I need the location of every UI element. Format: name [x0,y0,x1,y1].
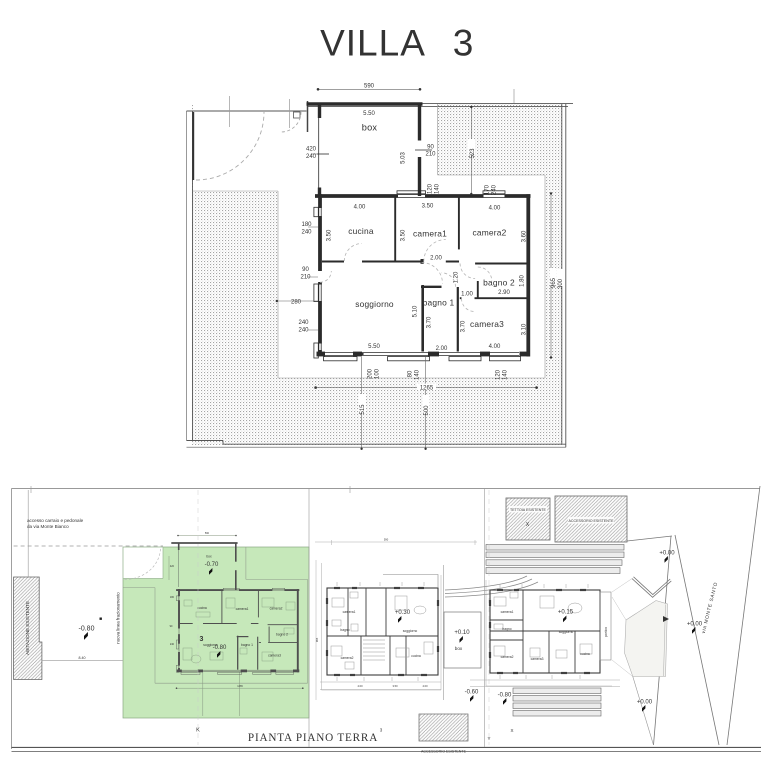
svg-text:camera2: camera2 [501,655,514,659]
svg-text:-0.80: -0.80 [79,626,95,633]
svg-text:280: 280 [291,300,302,306]
svg-text:500: 500 [424,405,430,416]
svg-text:2.00: 2.00 [436,346,448,352]
svg-text:965: 965 [315,637,319,642]
svg-text:camera1: camera1 [501,610,514,614]
svg-text:camera2: camera2 [270,607,283,611]
svg-text:camera2: camera2 [473,228,507,238]
svg-text:ACCESSORIO ESISTENTE: ACCESSORIO ESISTENTE [421,750,467,754]
svg-text:box: box [362,123,378,133]
svg-text:TETTOIA ESISTENTE: TETTOIA ESISTENTE [510,508,546,512]
svg-text:965: 965 [551,277,557,288]
svg-text:+0.10: +0.10 [454,630,470,636]
svg-text:5.50: 5.50 [368,344,380,350]
svg-text:3.50: 3.50 [392,684,398,688]
svg-text:3.50: 3.50 [327,229,333,241]
svg-text:590: 590 [205,532,210,535]
svg-text:3.50: 3.50 [422,204,434,210]
svg-text:210: 210 [300,275,311,281]
svg-text:2.00: 2.00 [430,256,442,262]
svg-text:-0.80: -0.80 [213,645,227,651]
svg-text:3.70: 3.70 [461,320,467,332]
svg-text:590: 590 [364,84,375,90]
svg-text:box: box [455,646,463,651]
svg-text:cucina: cucina [411,654,421,658]
svg-text:590: 590 [384,538,389,542]
svg-text:da via Monte Bianco: da via Monte Bianco [27,524,69,529]
svg-text:4.00: 4.00 [357,684,363,688]
svg-text:3.60: 3.60 [522,230,528,242]
svg-text:5.50: 5.50 [363,111,375,117]
svg-text:3: 3 [453,23,474,64]
svg-text:bagno 2: bagno 2 [483,278,515,288]
svg-text:170: 170 [485,184,491,195]
svg-text:180: 180 [170,596,175,599]
svg-text:8.40: 8.40 [79,656,86,660]
svg-text:bagno 1: bagno 1 [423,298,455,308]
svg-text:1265: 1265 [420,386,434,392]
svg-text:420: 420 [306,147,317,153]
svg-text:100: 100 [375,368,381,379]
svg-text:camera3: camera3 [531,657,544,661]
svg-text:accesso carraio e pedonale: accesso carraio e pedonale [27,518,84,523]
svg-text:240: 240 [492,184,498,195]
svg-text:X: X [510,728,513,733]
svg-text:140: 140 [415,369,421,380]
svg-text:210: 210 [425,152,436,158]
svg-text:240: 240 [170,643,175,646]
svg-text:cucina: cucina [197,606,207,610]
svg-text:140: 140 [435,183,441,194]
svg-text:nuova linea frazionamento: nuova linea frazionamento [116,592,121,644]
svg-text:90: 90 [427,145,434,151]
svg-text:camera3: camera3 [268,654,281,658]
svg-text:+0.15: +0.15 [558,610,574,616]
svg-text:ACCESSORIO ESISTENTE: ACCESSORIO ESISTENTE [569,519,615,523]
svg-text:3.50: 3.50 [401,229,407,241]
svg-text:cucina: cucina [580,652,590,656]
svg-text:soggiorno: soggiorno [559,630,574,634]
svg-text:bagno 2: bagno 2 [276,633,288,637]
svg-text:VILLA: VILLA [320,23,426,64]
svg-text:515: 515 [360,404,366,415]
svg-text:soggiorno: soggiorno [403,629,418,633]
svg-text:240: 240 [306,154,317,160]
svg-text:240: 240 [298,320,309,326]
svg-text:portico: portico [604,627,608,637]
svg-text:4.00: 4.00 [489,344,501,350]
svg-text:box: box [206,555,212,559]
svg-text:120: 120 [496,369,502,380]
svg-text:3: 3 [200,636,204,643]
svg-text:ABITAZIONE ESISTENTE: ABITAZIONE ESISTENTE [25,601,30,655]
svg-text:240: 240 [298,328,309,334]
svg-text:200: 200 [368,368,374,379]
svg-text:+0.30: +0.30 [395,610,411,616]
svg-text:bagno 1: bagno 1 [241,643,253,647]
svg-text:-0.60: -0.60 [465,690,479,696]
svg-text:bagno: bagno [502,627,511,631]
svg-text:K: K [196,728,200,734]
svg-text:80: 80 [408,370,414,377]
svg-text:90: 90 [302,267,309,273]
svg-text:+0.00: +0.00 [687,622,703,628]
svg-text:1.80: 1.80 [520,275,526,287]
svg-text:4.00: 4.00 [489,206,501,212]
svg-text:140: 140 [503,369,509,380]
svg-text:180: 180 [301,222,312,228]
svg-text:420: 420 [170,565,175,568]
svg-text:1.00: 1.00 [461,292,473,298]
svg-text:PIANTA PIANO TERRA: PIANTA PIANO TERRA [248,732,378,744]
svg-text:-0.80: -0.80 [498,693,512,699]
svg-text:Y: Y [487,736,490,741]
svg-text:cucina: cucina [348,226,374,236]
svg-text:3.10: 3.10 [522,323,528,335]
svg-text:soggiorno: soggiorno [355,299,394,309]
svg-text:camera3: camera3 [470,319,504,329]
svg-text:300: 300 [558,278,564,289]
svg-text:camera1: camera1 [343,610,356,614]
svg-text:camera1: camera1 [413,229,447,239]
svg-text:-0.70: -0.70 [205,562,219,568]
svg-text:120: 120 [428,183,434,194]
svg-text:+0.00: +0.00 [659,551,675,557]
svg-text:5.10: 5.10 [413,305,419,317]
svg-text:camera2: camera2 [341,656,354,660]
svg-text:523: 523 [470,148,476,159]
svg-text:4.00: 4.00 [422,684,428,688]
svg-text:240: 240 [301,230,312,236]
svg-text:5.03: 5.03 [401,152,407,164]
svg-text:1.20: 1.20 [454,271,460,283]
svg-text:2.90: 2.90 [498,290,510,296]
svg-text:camera1: camera1 [236,607,249,611]
svg-text:3.70: 3.70 [427,316,433,328]
svg-text:1265: 1265 [237,685,243,688]
svg-text:4.00: 4.00 [354,205,366,211]
svg-text:bagno: bagno [340,628,349,632]
svg-text:+0.00: +0.00 [637,700,653,706]
